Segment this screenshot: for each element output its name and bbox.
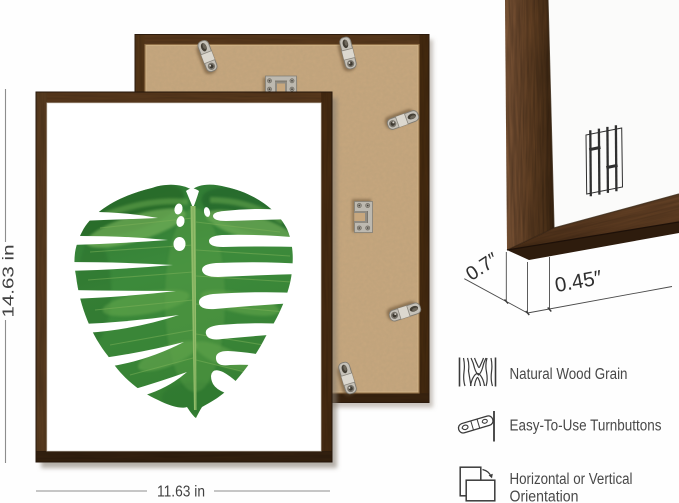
svg-text:11.63 in: 11.63 in [157, 484, 205, 501]
svg-text:Horizontal or Vertical: Horizontal or Vertical [510, 471, 633, 488]
svg-text:Natural Wood Grain: Natural Wood Grain [510, 366, 628, 383]
svg-text:Easy-To-Use Turnbuttons: Easy-To-Use Turnbuttons [510, 418, 662, 435]
svg-text:14.63 in: 14.63 in [1, 245, 18, 318]
svg-text:Orientation: Orientation [510, 489, 579, 503]
